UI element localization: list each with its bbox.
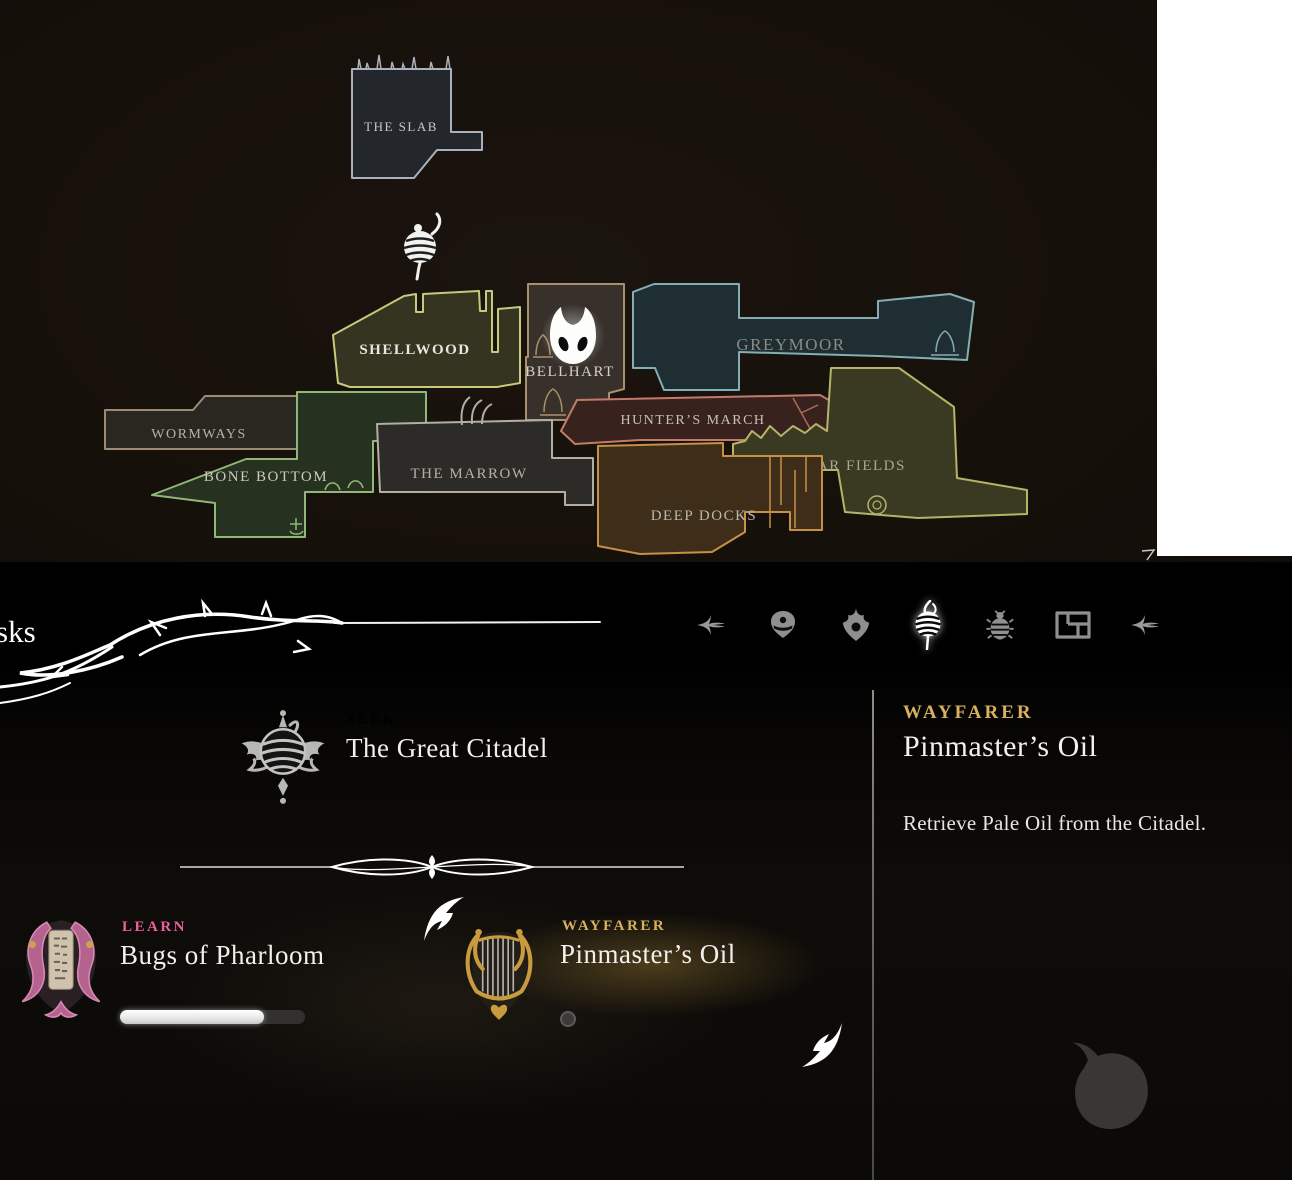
selection-bracket-bottom-right-icon <box>800 1021 846 1069</box>
quest-kicker: LEARN <box>122 919 187 936</box>
gold-harp-icon <box>452 920 546 1026</box>
map-fragment-icon <box>1055 610 1091 640</box>
region-label-bone-bottom: BONE BOTTOM <box>204 469 328 485</box>
tab-maps[interactable] <box>1050 602 1096 648</box>
tab-crests[interactable] <box>833 602 879 648</box>
white-overlay-panel <box>1157 0 1292 556</box>
lyre-scroll-icon <box>12 914 110 1020</box>
quest-kicker: SEEK <box>347 712 397 729</box>
tab-bestiary[interactable] <box>977 602 1023 648</box>
ornament-divider <box>180 855 685 879</box>
player-mask-marker-icon <box>541 304 605 368</box>
quest-kicker: WAYFARER <box>562 918 666 935</box>
thorn-header-ornament <box>0 595 620 710</box>
map-region-wormways: WORMWAYS <box>105 396 299 449</box>
thorn-arrow-right-icon <box>1130 612 1160 638</box>
tab-previous-section[interactable] <box>688 602 734 648</box>
map-region-the-slab: THE SLAB <box>352 55 482 178</box>
quest-progress-fill <box>120 1010 264 1024</box>
region-label-deep-docks: DEEP DOCKS <box>651 508 758 524</box>
crest-icon <box>841 608 871 642</box>
world-map-view: THE SLAB SHELLWOOD BELLHART GREYMOOR <box>0 0 1292 562</box>
quest-step-dot <box>560 1011 576 1027</box>
region-label-greymoor: GREYMOOR <box>736 335 845 354</box>
region-label-the-marrow: THE MARROW <box>410 466 527 482</box>
region-label-wormways: WORMWAYS <box>151 427 247 442</box>
quest-detail-panel: WAYFARER Pinmaster’s Oil Retrieve Pale O… <box>903 702 1283 836</box>
quest-item-the-great-citadel[interactable]: SEEK The Great Citadel <box>237 703 797 815</box>
winged-spool-medal-icon <box>237 703 329 811</box>
region-label-shellwood: SHELLWOOD <box>359 342 470 358</box>
map-region-shellwood: SHELLWOOD <box>333 291 520 387</box>
quest-title: The Great Citadel <box>346 733 548 764</box>
slab-spikes <box>358 55 450 69</box>
tab-quests-active[interactable] <box>905 602 951 648</box>
silk-spool-marker-icon <box>404 214 440 279</box>
quest-progress-bar <box>120 1010 305 1024</box>
section-tabs <box>688 602 1168 648</box>
region-label-the-slab: THE SLAB <box>364 119 438 134</box>
silk-spool-icon <box>909 600 947 650</box>
thorn-arrow-left-icon <box>696 612 726 638</box>
region-label-hunters-march: HUNTER’S MARCH <box>620 413 765 428</box>
rosary-blob-icon <box>1060 1042 1170 1152</box>
tasks-panel: sks <box>0 562 1292 1180</box>
panel-divider <box>872 690 874 1180</box>
map-region-greymoor: GREYMOOR <box>633 284 974 390</box>
silksong-quest-journal-screen: THE SLAB SHELLWOOD BELLHART GREYMOOR <box>0 0 1292 1180</box>
tab-next-section[interactable] <box>1122 602 1168 648</box>
tab-inventory[interactable] <box>760 602 806 648</box>
detail-title: Pinmaster’s Oil <box>903 730 1283 764</box>
map-region-deep-docks: DEEP DOCKS <box>598 443 822 554</box>
cutoff-glyph-fragment <box>1142 550 1154 560</box>
detail-description: Retrieve Pale Oil from the Citadel. <box>903 811 1283 836</box>
quest-item-pinmasters-oil-selected[interactable]: WAYFARER Pinmaster’s Oil <box>420 895 845 1070</box>
mask-icon <box>769 610 797 640</box>
bug-icon <box>984 608 1016 642</box>
world-map: THE SLAB SHELLWOOD BELLHART GREYMOOR <box>0 0 1292 562</box>
quest-title: Bugs of Pharloom <box>120 940 325 971</box>
quest-title: Pinmaster’s Oil <box>560 939 736 970</box>
detail-kicker: WAYFARER <box>903 702 1283 724</box>
